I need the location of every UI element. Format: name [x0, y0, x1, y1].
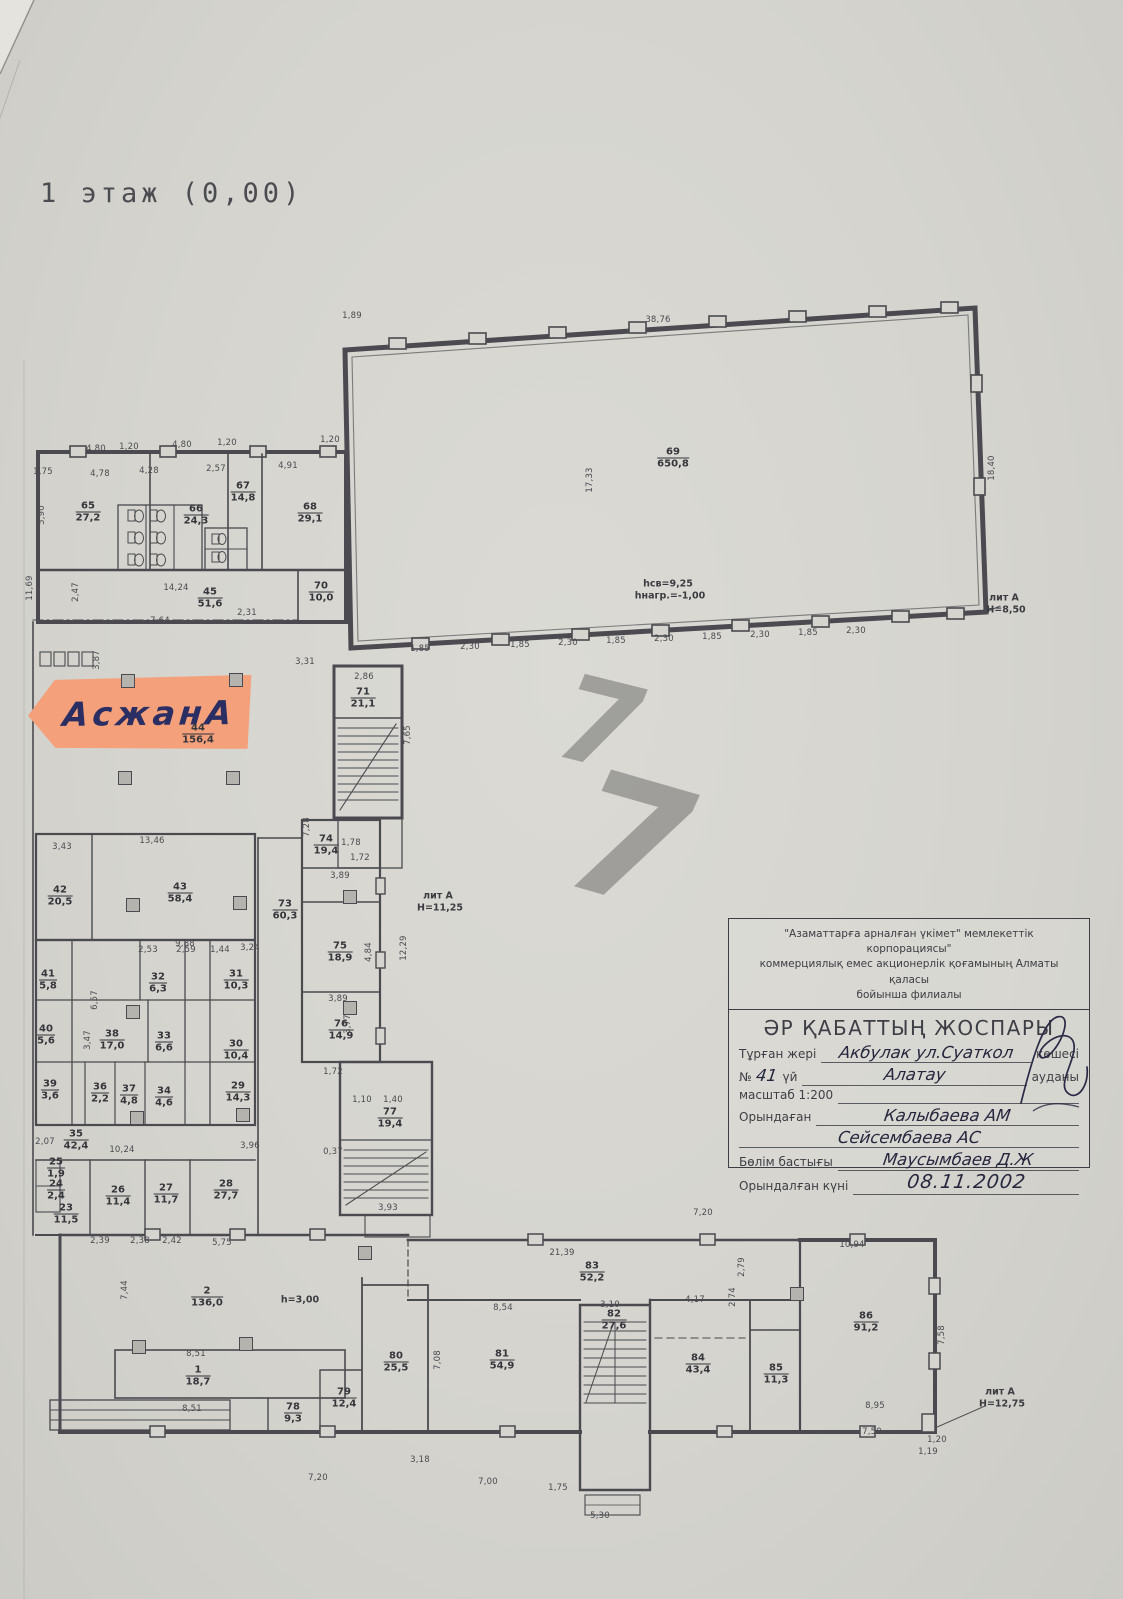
- room-number: 2: [191, 1286, 223, 1298]
- room-area: 19,4: [378, 1119, 403, 1130]
- room-number: 79: [332, 1387, 357, 1399]
- room-number: 23: [54, 1203, 79, 1215]
- room-area: 29,1: [298, 514, 323, 525]
- room-number: 39: [41, 1079, 59, 1091]
- room-area: 2,2: [91, 1094, 109, 1105]
- column-square: [343, 1001, 357, 1015]
- plan-annotation: лит А: [423, 891, 453, 902]
- dimension-label: 3,96: [240, 1141, 260, 1151]
- dimension-label: 1,20: [320, 435, 340, 445]
- room-number: 32: [149, 972, 167, 984]
- room-number: 26: [106, 1185, 131, 1197]
- plan-labels-layer: 6527,26624,36714,86829,14551,67010,07121…: [0, 0, 1123, 1599]
- room-label: 3817,0: [100, 1029, 125, 1052]
- dimension-label: 10,94: [839, 1240, 864, 1250]
- room-number: 25: [47, 1157, 65, 1169]
- room-label: 2611,4: [106, 1185, 131, 1208]
- column-square: [239, 1337, 253, 1351]
- dimension-label: 7,58: [937, 1325, 947, 1345]
- executor-label: Орындаған: [739, 1110, 811, 1126]
- dimension-label: 2,30: [558, 638, 578, 648]
- dimension-label: 10,24: [109, 1145, 134, 1155]
- department-head-label: Бөлім бастығы: [739, 1155, 833, 1171]
- dimension-label: 3,47: [83, 1030, 93, 1050]
- room-label: 7419,4: [314, 834, 339, 857]
- plan-annotation: Н=8,50: [986, 605, 1025, 616]
- dimension-label: 2,53: [138, 945, 158, 955]
- room-label: 326,3: [149, 972, 167, 995]
- dimension-label: 7,50: [862, 1427, 882, 1437]
- dimension-label: 3,31: [295, 657, 315, 667]
- dimension-label: 4,17: [685, 1295, 705, 1305]
- room-area: 43,4: [686, 1365, 711, 1376]
- dimension-label: 2,30: [460, 642, 480, 652]
- plan-annotation: h=3,00: [281, 1295, 319, 1306]
- room-number: 43: [168, 882, 193, 894]
- department-head-value: Маусымбаев Д.Ж: [882, 1151, 1035, 1169]
- room-area: 24,3: [184, 516, 209, 527]
- room-number: 66: [184, 504, 209, 516]
- dimension-label: 3,18: [410, 1455, 430, 1465]
- room-label: 251,9: [47, 1157, 65, 1180]
- room-label: 6714,8: [231, 481, 256, 504]
- dimension-label: 1,85: [702, 632, 722, 642]
- dimension-label: 2,30: [654, 634, 674, 644]
- room-area: 18,9: [328, 953, 353, 964]
- date-label: Орындалған күні: [739, 1179, 848, 1195]
- dimension-label: 5,75: [212, 1238, 232, 1248]
- dimension-label: 4,78: [90, 469, 110, 479]
- dimension-label: 3,77: [343, 1014, 353, 1034]
- room-number: 37: [120, 1084, 138, 1096]
- room-number: 71: [351, 687, 376, 699]
- dimension-label: 14,24: [163, 583, 188, 593]
- room-number: 73: [273, 899, 298, 911]
- room-area: 60,3: [273, 911, 298, 922]
- dimension-label: 3,89: [330, 871, 350, 881]
- room-number: 68: [298, 502, 323, 514]
- column-square: [130, 1111, 144, 1125]
- room-number: 27: [154, 1183, 179, 1195]
- dimension-label: 7,65: [403, 725, 413, 745]
- room-label: 415,8: [39, 969, 57, 992]
- room-label: 6527,2: [76, 501, 101, 524]
- room-label: 2711,7: [154, 1183, 179, 1206]
- dimension-label: 7,00: [478, 1477, 498, 1487]
- room-area: 14,8: [231, 493, 256, 504]
- dimension-label: 2,42: [162, 1236, 182, 1246]
- room-number: 77: [378, 1107, 403, 1119]
- dimension-label: 1,85: [798, 628, 818, 638]
- dimension-label: 8,51: [186, 1349, 206, 1359]
- room-area: 51,6: [198, 599, 223, 610]
- dimension-label: 4,80: [172, 440, 192, 450]
- room-label: 3542,4: [64, 1129, 89, 1152]
- room-label: 2136,0: [191, 1286, 223, 1309]
- room-area: 58,4: [168, 894, 193, 905]
- dimension-label: 3,93: [378, 1203, 398, 1213]
- room-number: 85: [764, 1363, 789, 1375]
- column-square: [790, 1287, 804, 1301]
- room-label: 69650,8: [657, 447, 689, 470]
- room-number: 70: [309, 581, 334, 593]
- room-label: 393,6: [41, 1079, 59, 1102]
- house-label: үй: [782, 1070, 797, 1086]
- dimension-label: 7,64: [150, 616, 170, 626]
- room-number: 28: [214, 1179, 239, 1191]
- org-line-2: коммерциялық емес акционерлік қоғамының …: [741, 957, 1077, 987]
- dimension-label: 4,80: [86, 444, 106, 454]
- room-area: 25,5: [384, 1363, 409, 1374]
- dimension-label: 2,47: [71, 582, 81, 602]
- dimension-label: 2,57: [206, 464, 226, 474]
- room-label: 8025,5: [384, 1351, 409, 1374]
- dimension-label: 2,38: [130, 1236, 150, 1246]
- dimension-label: 3,43: [52, 842, 72, 852]
- room-number: 75: [328, 941, 353, 953]
- room-number: 30: [224, 1039, 249, 1051]
- dimension-label: 17,33: [585, 467, 595, 492]
- column-square: [126, 1005, 140, 1019]
- room-label: 7360,3: [273, 899, 298, 922]
- org-line-1: "Азаматтарға арналған үкімет" мемлекетті…: [741, 927, 1077, 957]
- room-label: 8352,2: [580, 1261, 605, 1284]
- room-area: 11,7: [154, 1195, 179, 1206]
- room-label: 8227,6: [602, 1309, 627, 1332]
- dimension-label: 2,30: [846, 626, 866, 636]
- room-area: 42,4: [64, 1141, 89, 1152]
- room-area: 20,5: [48, 897, 73, 908]
- room-number: 78: [284, 1402, 302, 1414]
- dimension-label: 38,76: [645, 315, 670, 325]
- room-area: 11,5: [54, 1215, 79, 1226]
- plan-annotation: лит А: [989, 593, 1019, 604]
- room-area: 10,3: [224, 981, 249, 992]
- room-area: 3,6: [41, 1091, 59, 1102]
- house-number-value: 41: [755, 1067, 779, 1085]
- dimension-label: 2,59: [176, 945, 196, 955]
- dimension-label: 2,30: [750, 630, 770, 640]
- room-area: 18,7: [186, 1377, 211, 1388]
- dimension-label: 6,57: [90, 990, 100, 1010]
- room-area: 52,2: [580, 1273, 605, 1284]
- room-label: 8511,3: [764, 1363, 789, 1386]
- dimension-label: 8,54: [493, 1303, 513, 1313]
- room-number: 74: [314, 834, 339, 846]
- plan-annotation: hнагр.=-1,00: [635, 591, 705, 602]
- room-area: 136,0: [191, 1298, 223, 1309]
- room-label: 336,6: [155, 1031, 173, 1054]
- dimension-label: 5,90: [37, 505, 47, 525]
- room-label: 3010,4: [224, 1039, 249, 1062]
- room-label: 6829,1: [298, 502, 323, 525]
- room-label: 7121,1: [351, 687, 376, 710]
- room-label: 8154,9: [490, 1349, 515, 1372]
- dimension-label: 8,51: [182, 1404, 202, 1414]
- dimension-label: 1,72: [350, 853, 370, 863]
- room-area: 19,4: [314, 846, 339, 857]
- room-number: 36: [91, 1082, 109, 1094]
- dimension-label: 5,30: [590, 1511, 610, 1521]
- dimension-label: 3,24: [240, 943, 260, 953]
- dimension-label: 4,84: [364, 942, 374, 962]
- executor2-value: Сейсембаева АС: [837, 1129, 982, 1147]
- dimension-label: 7,28: [302, 817, 312, 837]
- dimension-label: 2,31: [237, 608, 257, 618]
- dimension-label: 2,74: [728, 1287, 738, 1307]
- dimension-label: 1,20: [927, 1435, 947, 1445]
- room-number: 40: [37, 1024, 55, 1036]
- room-label: 118,7: [186, 1365, 211, 1388]
- room-number: 1: [186, 1365, 211, 1377]
- room-number: 44: [182, 723, 214, 735]
- dimension-label: 12,29: [399, 935, 409, 960]
- executor1-value: Калыбаева АМ: [883, 1107, 1012, 1125]
- room-area: 27,6: [602, 1321, 627, 1332]
- room-number: 42: [48, 885, 73, 897]
- room-number: 65: [76, 501, 101, 513]
- dimension-label: 1,89: [342, 311, 362, 321]
- column-square: [226, 771, 240, 785]
- room-number: 33: [155, 1031, 173, 1043]
- room-label: 8443,4: [686, 1353, 711, 1376]
- room-number: 35: [64, 1129, 89, 1141]
- room-number: 34: [155, 1086, 173, 1098]
- dimension-label: 2,07: [35, 1137, 55, 1147]
- room-number: 38: [100, 1029, 125, 1041]
- dimension-label: 7,20: [693, 1208, 713, 1218]
- dimension-label: 7,20: [308, 1473, 328, 1483]
- room-area: 6,3: [149, 984, 167, 995]
- column-square: [126, 898, 140, 912]
- dimension-label: 2,86: [354, 672, 374, 682]
- dimension-label: 1,20: [217, 438, 237, 448]
- dimension-label: 1,40: [383, 1095, 403, 1105]
- dimension-label: 18,40: [987, 455, 997, 480]
- date-value: 08.11.2002: [905, 1173, 1027, 1194]
- room-area: 27,2: [76, 513, 101, 524]
- room-area: 14,3: [226, 1093, 251, 1104]
- room-area: 27,7: [214, 1191, 239, 1202]
- room-number: 41: [39, 969, 57, 981]
- dimension-label: 1,19: [918, 1447, 938, 1457]
- plan-annotation: Н=12,75: [979, 1399, 1025, 1410]
- room-label: 44156,4: [182, 723, 214, 746]
- dimension-label: 1,75: [548, 1483, 568, 1493]
- district-value: Алатау: [882, 1066, 946, 1084]
- room-number: 31: [224, 969, 249, 981]
- dimension-label: 4,91: [278, 461, 298, 471]
- dimension-label: 3,87: [92, 650, 102, 670]
- room-area: 91,2: [854, 1323, 879, 1334]
- dimension-label: 7,44: [120, 1280, 130, 1300]
- plan-annotation: лит А: [985, 1387, 1015, 1398]
- title-block: "Азаматтарға арналған үкімет" мемлекетті…: [728, 918, 1090, 1168]
- room-label: 4551,6: [198, 587, 223, 610]
- org-line-3: бойынша филиалы: [741, 988, 1077, 1003]
- room-number: 29: [226, 1081, 251, 1093]
- dimension-label: 7,08: [433, 1350, 443, 1370]
- dimension-label: 1,85: [410, 644, 430, 654]
- dimension-label: 1,75: [33, 467, 53, 477]
- room-label: 789,3: [284, 1402, 302, 1425]
- room-area: 54,9: [490, 1361, 515, 1372]
- room-area: 11,4: [106, 1197, 131, 1208]
- dimension-label: 3,10: [600, 1300, 620, 1310]
- room-label: 7010,0: [309, 581, 334, 604]
- room-area: 156,4: [182, 735, 214, 746]
- room-number: 24: [47, 1179, 65, 1191]
- room-area: 21,1: [351, 699, 376, 710]
- room-area: 5,8: [39, 981, 57, 992]
- dimension-label: 1,78: [341, 838, 361, 848]
- room-area: 10,0: [309, 593, 334, 604]
- dimension-label: 0,37: [323, 1147, 343, 1157]
- scale-label: масштаб 1:200: [739, 1088, 833, 1104]
- room-label: 2827,7: [214, 1179, 239, 1202]
- column-square: [229, 673, 243, 687]
- dimension-label: 1,10: [352, 1095, 372, 1105]
- room-area: 10,4: [224, 1051, 249, 1062]
- room-label: 7912,4: [332, 1387, 357, 1410]
- room-label: 7518,9: [328, 941, 353, 964]
- room-label: 6624,3: [184, 504, 209, 527]
- location-value: Акбулак ул.Суаткол: [838, 1044, 1015, 1062]
- dimension-label: 1,20: [119, 442, 139, 452]
- number-label: №: [739, 1070, 751, 1086]
- dimension-label: 8,95: [865, 1401, 885, 1411]
- room-label: 344,6: [155, 1086, 173, 1109]
- room-area: 12,4: [332, 1399, 357, 1410]
- plan-annotation: hсв=9,25: [643, 579, 693, 590]
- room-area: 17,0: [100, 1041, 125, 1052]
- room-area: 4,6: [155, 1098, 173, 1109]
- column-square: [233, 896, 247, 910]
- plan-annotation: Н=11,25: [417, 903, 463, 914]
- room-label: 242,4: [47, 1179, 65, 1202]
- room-number: 67: [231, 481, 256, 493]
- scanned-floorplan-page: 1 этаж (0,00) 77 АсжанА 6527,26624,36714…: [0, 0, 1123, 1599]
- room-area: 9,3: [284, 1414, 302, 1425]
- room-label: 8691,2: [854, 1311, 879, 1334]
- org-name: "Азаматтарға арналған үкімет" мемлекетті…: [729, 919, 1089, 1010]
- room-area: 5,6: [37, 1036, 55, 1047]
- room-label: 4220,5: [48, 885, 73, 908]
- dimension-label: 2,39: [90, 1236, 110, 1246]
- room-number: 69: [657, 447, 689, 459]
- room-area: 6,6: [155, 1043, 173, 1054]
- room-number: 84: [686, 1353, 711, 1365]
- room-label: 3110,3: [224, 969, 249, 992]
- dimension-label: 1,72: [323, 1067, 343, 1077]
- room-area: 650,8: [657, 459, 689, 470]
- signature-scribble: [1013, 1003, 1097, 1123]
- room-number: 86: [854, 1311, 879, 1323]
- column-square: [118, 771, 132, 785]
- room-number: 80: [384, 1351, 409, 1363]
- room-label: 4358,4: [168, 882, 193, 905]
- room-number: 45: [198, 587, 223, 599]
- dimension-label: 1,44: [210, 945, 230, 955]
- room-number: 82: [602, 1309, 627, 1321]
- column-square: [121, 674, 135, 688]
- room-label: 405,6: [37, 1024, 55, 1047]
- room-area: 2,4: [47, 1191, 65, 1202]
- dimension-label: 2,79: [737, 1257, 747, 1277]
- room-area: 11,3: [764, 1375, 789, 1386]
- dimension-label: 11,69: [25, 575, 35, 600]
- column-square: [132, 1340, 146, 1354]
- dimension-label: 21,39: [549, 1248, 574, 1258]
- room-label: 2914,3: [226, 1081, 251, 1104]
- column-square: [358, 1246, 372, 1260]
- room-label: 362,2: [91, 1082, 109, 1105]
- column-square: [343, 890, 357, 904]
- room-label: 2311,5: [54, 1203, 79, 1226]
- column-square: [236, 1108, 250, 1122]
- room-number: 83: [580, 1261, 605, 1273]
- room-label: 374,8: [120, 1084, 138, 1107]
- dimension-label: 4,28: [139, 466, 159, 476]
- dimension-label: 13,46: [139, 836, 164, 846]
- room-area: 4,8: [120, 1096, 138, 1107]
- location-label: Тұрған жері: [739, 1047, 816, 1063]
- room-number: 81: [490, 1349, 515, 1361]
- dimension-label: 1,85: [510, 640, 530, 650]
- dimension-label: 1,85: [606, 636, 626, 646]
- room-label: 7719,4: [378, 1107, 403, 1130]
